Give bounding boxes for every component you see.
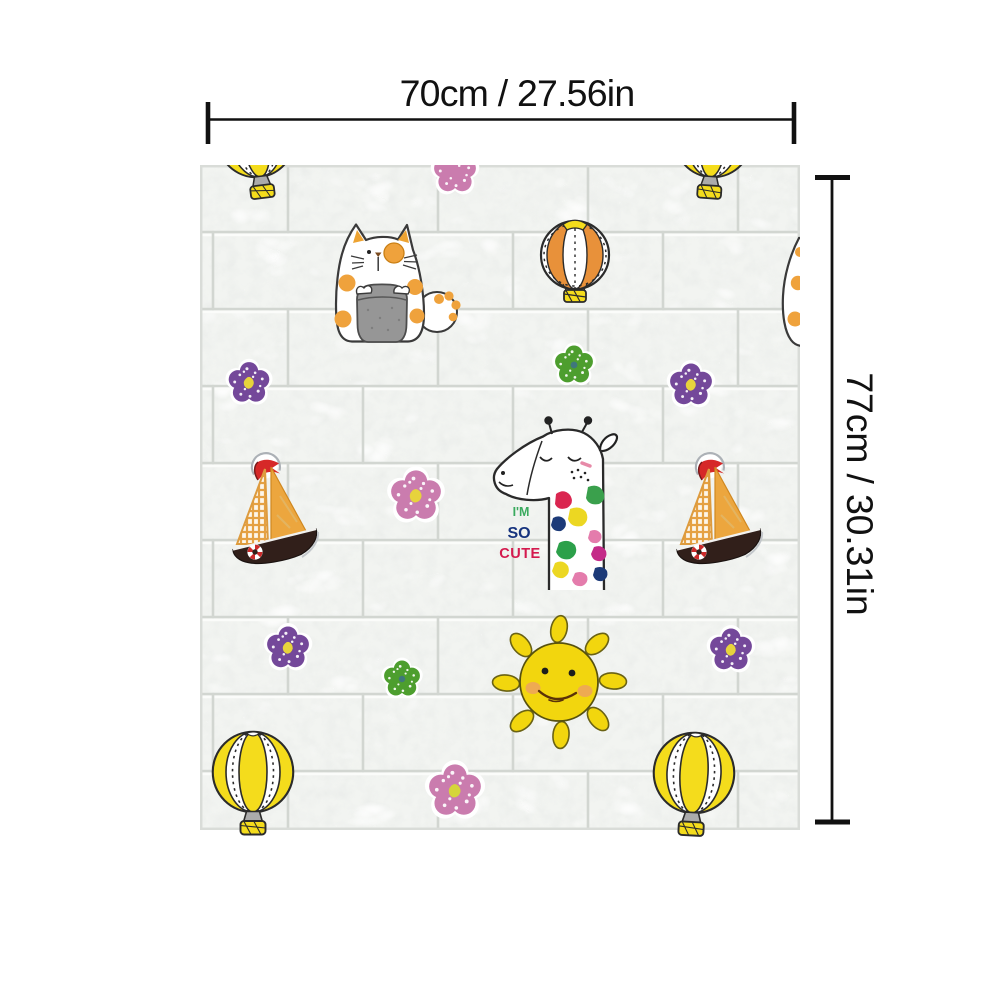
svg-text:77cm / 30.31in: 77cm / 30.31in <box>839 372 881 615</box>
svg-text:70cm / 27.56in: 70cm / 27.56in <box>400 72 635 114</box>
svg-text:SO: SO <box>507 525 530 542</box>
svg-text:I'M: I'M <box>513 505 530 519</box>
svg-text:CUTE: CUTE <box>499 546 540 562</box>
